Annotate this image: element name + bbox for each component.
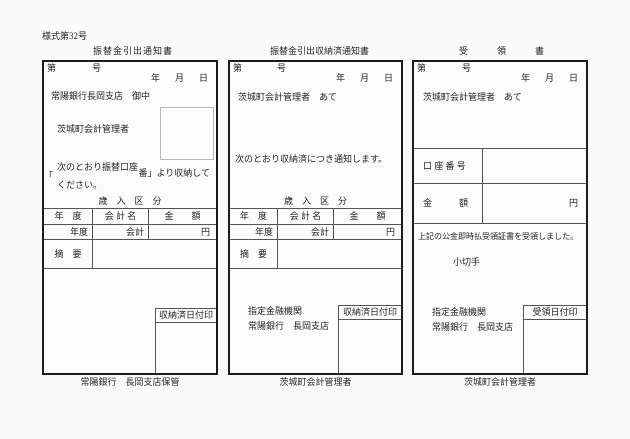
receipt-date-stamp-box: 受領日付印 (523, 305, 586, 373)
panel-collection-completed-notice: 第 号 年 月 日 茨城町会計管理者 あて 次のとおり収納済につき通知します。 … (228, 60, 403, 375)
revenue-table: 年 度 会 計 名 金 額 年度 会計 円 摘 要 (44, 208, 216, 269)
panel1-footer: 常陽銀行 長岡支店保管 (42, 378, 218, 387)
note-value-cell (277, 239, 401, 268)
body-line2: 番」より収納して (138, 169, 210, 178)
doc-no-prefix: 第 (233, 64, 242, 73)
date-year-label: 年 (151, 74, 160, 83)
addressee-label: 茨城町会計管理者 あて (238, 93, 337, 102)
addressee-label: 茨城町会計管理者 あて (423, 93, 522, 102)
receipt-statement: 上記の公金即時払受領証書を受領しました。 (418, 233, 578, 241)
col-header-account: 会 計 名 (277, 209, 333, 224)
body-text: 次のとおり収納済につき通知します。 (235, 155, 387, 164)
stamp-box-label: 受領日付印 (524, 305, 586, 320)
date-day-label: 日 (569, 74, 578, 83)
col-header-amount: 金 額 (333, 209, 401, 224)
col-header-year: 年 度 (230, 209, 277, 224)
cell-amount-unit: 円 (333, 224, 401, 239)
date-day-label: 日 (199, 74, 208, 83)
col-header-year: 年 度 (44, 209, 92, 224)
col-header-account: 会 計 名 (92, 209, 148, 224)
account-number-label: 口 座 番 号 (414, 149, 482, 183)
amount-unit: 円 (482, 183, 586, 223)
designated-bank-label: 指定金融機関 (432, 308, 486, 317)
revenue-table: 年 度 会 計 名 金 額 年度 会計 円 摘 要 (230, 208, 401, 269)
cheque-label: 小切手 (453, 258, 480, 267)
account-number-cell (482, 149, 586, 183)
body-bracket: 「 (44, 172, 53, 181)
receipt-date-stamp-box: 収納済日付印 (338, 305, 401, 373)
addressee-label: 常陽銀行長岡支店 御中 (51, 92, 150, 101)
panel-receipt: 第 号 年 月 日 茨城町会計管理者 あて 口 座 番 号 金 額 円 上記の公… (412, 60, 588, 375)
date-row: 年 月 日 (151, 74, 208, 83)
receipt-date-stamp-box: 収納済日付印 (155, 308, 216, 373)
cell-account: 会計 (92, 224, 148, 239)
panel-withdrawal-notice: 第 号 年 月 日 常陽銀行長岡支店 御中 茨城町会計管理者 次のとおり振替口座… (42, 60, 218, 375)
date-year-label: 年 (521, 74, 530, 83)
panel2-title: 振替金引出収納済通知書 (270, 47, 369, 56)
designated-bank-label: 指定金融機関 (248, 307, 302, 316)
doc-no-suffix: 号 (92, 64, 101, 73)
panel1-title: 振替金引出通知書 (93, 47, 173, 56)
panel2-footer: 茨城町会計管理者 (228, 378, 403, 387)
doc-no-suffix: 号 (462, 64, 471, 73)
date-row: 年 月 日 (521, 74, 578, 83)
scanned-form-page: 様式第32号 振替金引出通知書 振替金引出収納済通知書 受領書 第 号 年 月 … (0, 0, 630, 439)
doc-no-prefix: 第 (417, 64, 426, 73)
col-header-amount: 金 額 (148, 209, 216, 224)
revenue-section-title: 歳 入 区 分 (230, 197, 401, 206)
date-month-label: 月 (175, 74, 184, 83)
amount-label: 金 額 (414, 183, 482, 223)
date-month-label: 月 (545, 74, 554, 83)
note-label: 摘 要 (44, 239, 92, 268)
note-label: 摘 要 (230, 239, 277, 268)
date-day-label: 日 (384, 74, 393, 83)
stamp-box-label: 収納済日付印 (339, 305, 401, 320)
cell-year: 年度 (230, 224, 277, 239)
panel3-title: 受領書 (459, 47, 573, 56)
doc-no-prefix: 第 (47, 64, 56, 73)
cell-year: 年度 (44, 224, 92, 239)
cell-account: 会計 (277, 224, 333, 239)
body-line3: ください。 (57, 181, 102, 190)
panel3-footer: 茨城町会計管理者 (412, 378, 588, 387)
doc-no-suffix: 号 (277, 64, 286, 73)
date-month-label: 月 (360, 74, 369, 83)
account-amount-table: 口 座 番 号 金 額 円 (414, 148, 586, 224)
manager-label: 茨城町会計管理者 (57, 125, 129, 134)
designated-bank-name: 常陽銀行 長岡支店 (248, 322, 329, 331)
note-value-cell (92, 239, 216, 268)
revenue-section-title: 歳 入 区 分 (44, 197, 216, 206)
designated-bank-name: 常陽銀行 長岡支店 (432, 323, 513, 332)
stamp-box-label: 収納済日付印 (156, 308, 216, 323)
body-line1: 次のとおり振替口座 (57, 163, 138, 172)
form-code-label: 様式第32号 (42, 32, 87, 41)
seal-box (160, 107, 214, 160)
cell-amount-unit: 円 (148, 224, 216, 239)
date-year-label: 年 (336, 74, 345, 83)
date-row: 年 月 日 (336, 74, 393, 83)
